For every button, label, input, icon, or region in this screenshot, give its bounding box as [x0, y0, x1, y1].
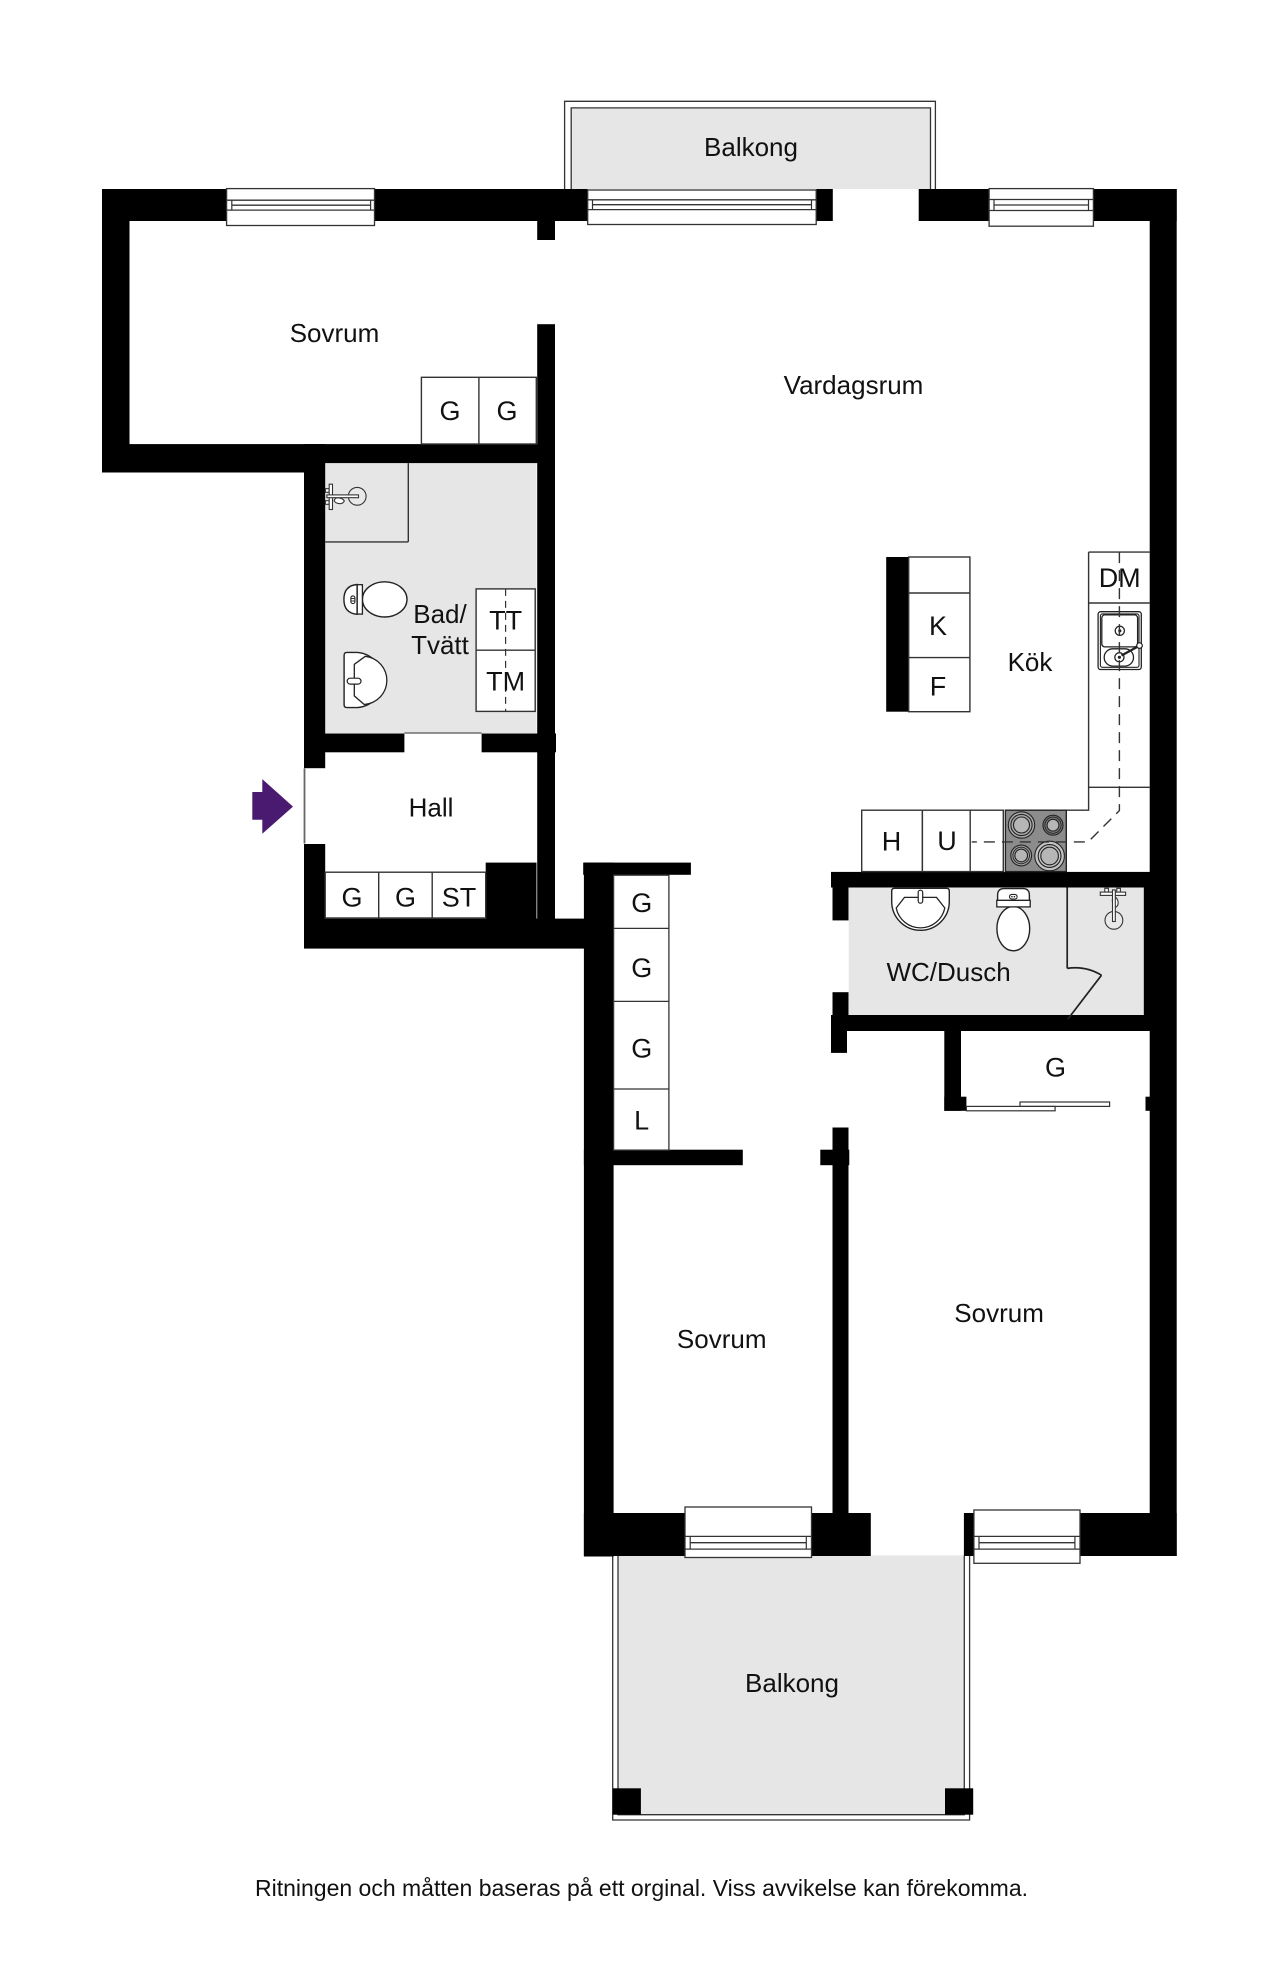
svg-text:Bad/: Bad/ — [413, 599, 467, 629]
svg-text:U: U — [937, 826, 957, 856]
svg-text:Sovrum: Sovrum — [290, 318, 380, 348]
svg-text:DM: DM — [1099, 563, 1141, 593]
svg-text:ST: ST — [442, 882, 477, 912]
svg-text:F: F — [930, 671, 947, 701]
svg-text:L: L — [634, 1105, 649, 1135]
svg-text:WC/Dusch: WC/Dusch — [886, 957, 1010, 987]
svg-text:G: G — [341, 882, 362, 912]
svg-text:Sovrum: Sovrum — [677, 1324, 767, 1354]
svg-text:Hall: Hall — [409, 793, 454, 823]
svg-text:TT: TT — [489, 605, 522, 635]
svg-text:Balkong: Balkong — [745, 1668, 839, 1698]
svg-text:Ritningen och måtten baseras p: Ritningen och måtten baseras på ett orgi… — [255, 1875, 1028, 1901]
svg-text:TM: TM — [486, 667, 525, 697]
svg-text:G: G — [1045, 1052, 1066, 1082]
svg-text:K: K — [929, 611, 947, 641]
svg-text:G: G — [395, 882, 416, 912]
svg-text:G: G — [439, 396, 460, 426]
svg-text:Vardagsrum: Vardagsrum — [784, 370, 924, 400]
svg-text:Sovrum: Sovrum — [954, 1298, 1044, 1328]
svg-text:Tvätt: Tvätt — [411, 630, 470, 660]
svg-text:G: G — [631, 953, 652, 983]
svg-text:H: H — [882, 827, 902, 857]
svg-text:G: G — [496, 396, 517, 426]
svg-text:G: G — [631, 888, 652, 918]
svg-text:G: G — [631, 1034, 652, 1064]
svg-text:Kök: Kök — [1008, 647, 1054, 677]
svg-text:Balkong: Balkong — [704, 132, 798, 162]
